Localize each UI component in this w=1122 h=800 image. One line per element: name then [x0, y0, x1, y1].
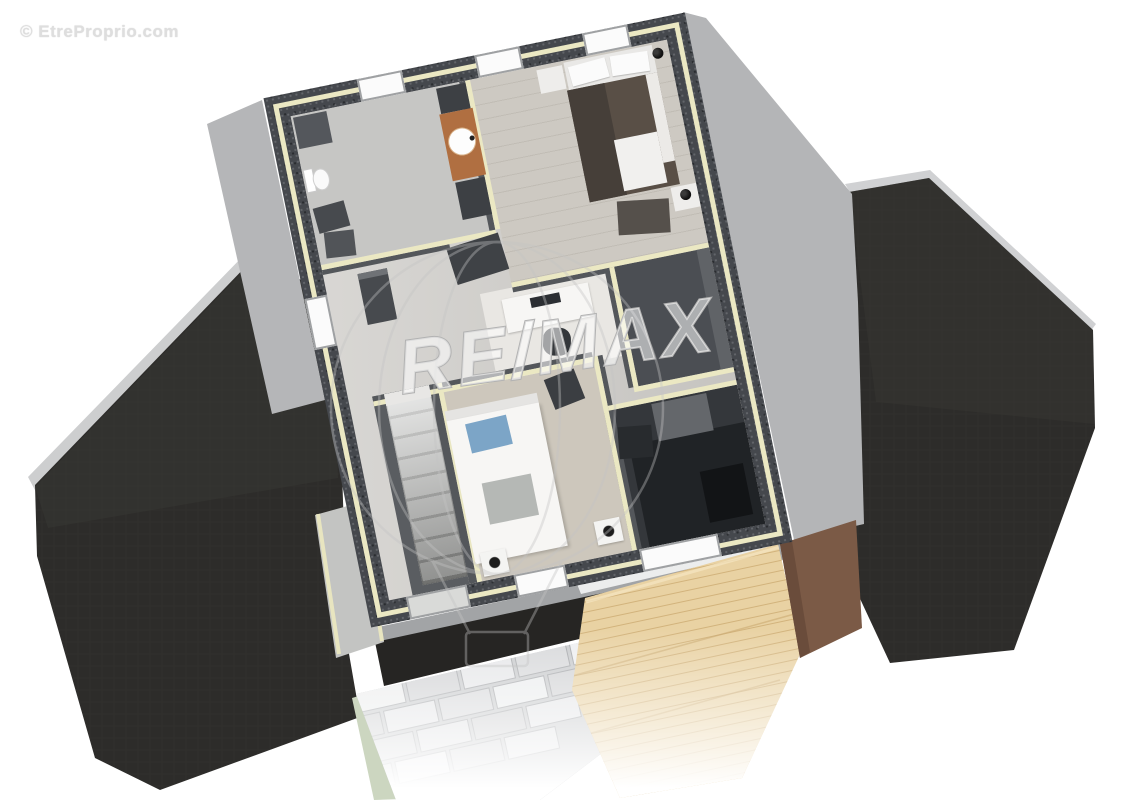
desk-chair — [543, 328, 571, 356]
storage-chair — [617, 425, 653, 460]
interior-floor — [291, 40, 766, 601]
planter-2 — [594, 517, 624, 546]
nightstand-1 — [536, 65, 566, 94]
copyright-watermark: © EtreProprio.com — [20, 22, 179, 42]
bed1-bench — [617, 198, 671, 235]
planter-1 — [480, 548, 510, 577]
bath-cabinet-2 — [324, 229, 357, 258]
chimney-block — [357, 268, 397, 325]
shower — [293, 111, 333, 149]
floor-plan-render: RE/MAX © EtreProprio.com — [0, 0, 1122, 800]
right-hip-roof — [842, 170, 1096, 663]
